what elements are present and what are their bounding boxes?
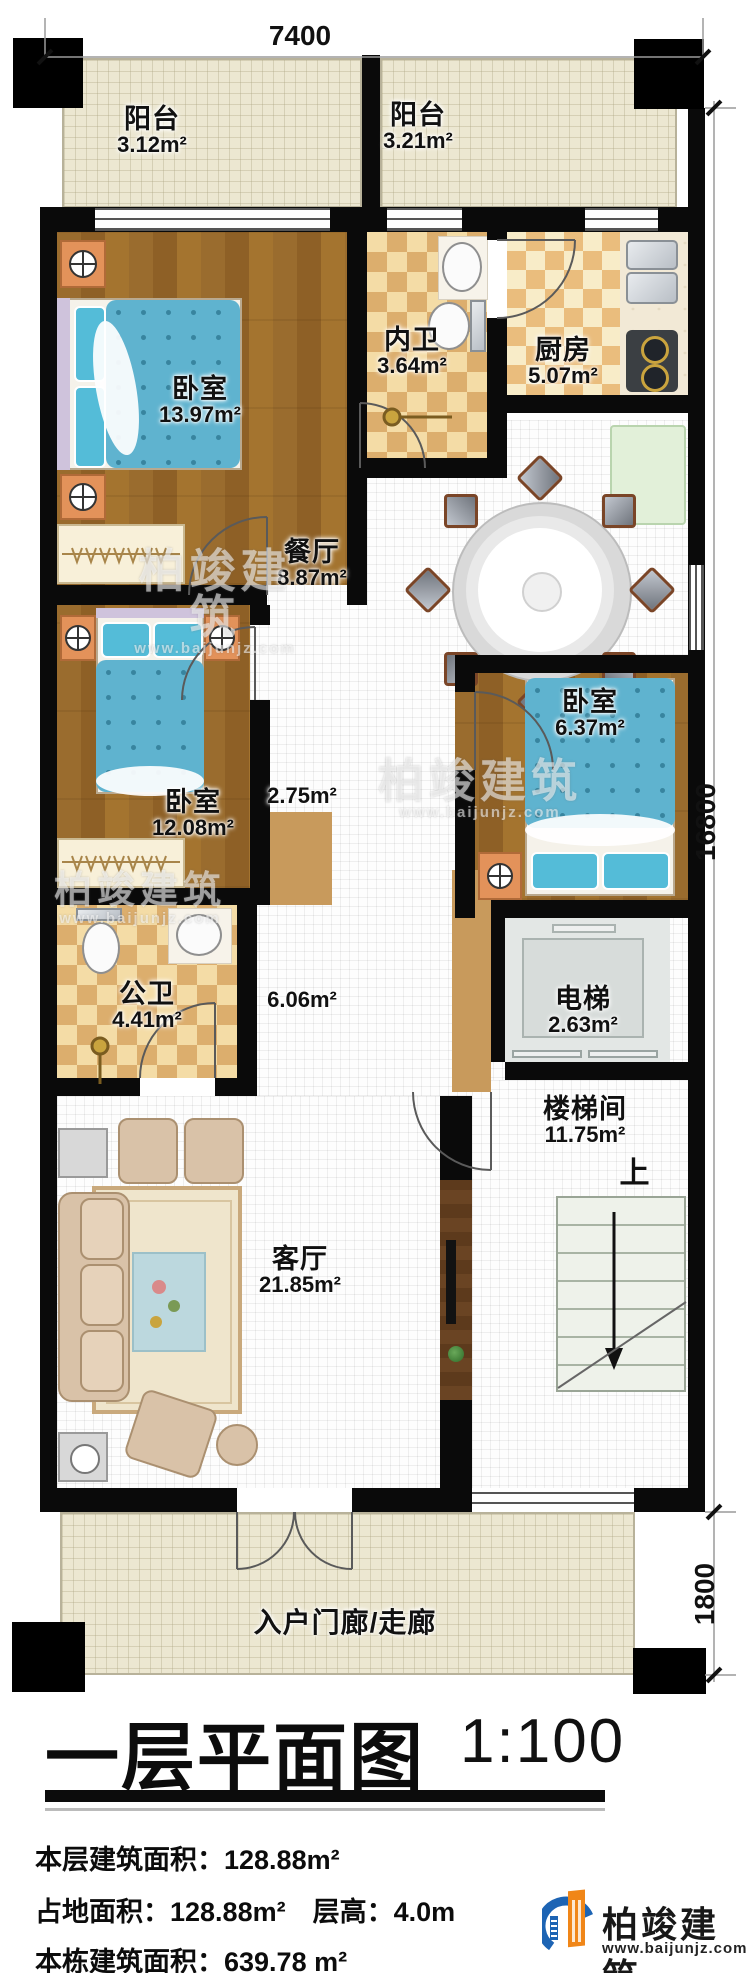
room-area: 12.08m² — [113, 816, 273, 839]
dining-table-center — [522, 572, 562, 612]
room-name: 厨房 — [483, 336, 643, 364]
room-name: 电梯 — [503, 985, 663, 1013]
room-name: 入户门廊/走廊 — [210, 1608, 480, 1637]
elevator-door — [512, 1050, 582, 1058]
stove-burner — [641, 336, 669, 364]
room-area: 6.06m² — [255, 988, 349, 1011]
entrance-floor — [60, 1512, 635, 1675]
kitchen-sink-basin — [626, 240, 678, 270]
dimension-top: 7400 — [240, 20, 360, 52]
bed-3-pillow — [531, 852, 599, 890]
room-area: 6.37m² — [510, 716, 670, 739]
wall-bottom — [352, 1488, 472, 1512]
wall — [250, 605, 270, 625]
stat-total-area: 本栋建筑面积：639.78 m² — [35, 1940, 347, 1973]
room-name: 卧室 — [120, 375, 280, 403]
room-label-stairwell: 楼梯间 11.75m² — [505, 1095, 665, 1146]
company-url: www.baijunjz.com — [602, 1940, 747, 1957]
toilet — [82, 922, 120, 974]
column — [12, 1622, 85, 1692]
stove-burner — [641, 364, 669, 392]
room-name: 卧室 — [510, 688, 670, 716]
stairs — [556, 1196, 686, 1392]
window — [387, 208, 462, 231]
bed-3-pillow — [602, 852, 670, 890]
nightstand — [60, 240, 106, 288]
dimension-right-lower: 1800 — [689, 1539, 721, 1649]
rug-flower — [152, 1280, 166, 1294]
room-label-balcony-left: 阳台 3.12m² — [72, 105, 232, 156]
room-name: 餐厅 — [232, 538, 392, 566]
room-area: 3.21m² — [338, 129, 498, 152]
tv — [446, 1240, 456, 1324]
rug-flower — [168, 1300, 180, 1312]
elevator-door — [588, 1050, 658, 1058]
wall — [487, 395, 688, 413]
room-area: 4.41m² — [67, 1008, 227, 1031]
sofa-cushion — [80, 1264, 124, 1326]
stairs-up-label: 上 — [615, 1158, 655, 1190]
column — [13, 38, 83, 108]
room-area: 8.87m² — [232, 566, 392, 589]
room-label-bedroom-2: 卧室 12.08m² — [113, 788, 273, 839]
nightstand — [60, 615, 96, 661]
room-label-elevator: 电梯 2.63m² — [503, 985, 663, 1036]
nightstand — [60, 474, 106, 520]
sofa-cushion — [80, 1198, 124, 1260]
stat-floor-area: 本层建筑面积：128.88m² — [35, 1838, 340, 1877]
wall — [491, 900, 688, 918]
room-name: 阳台 — [72, 105, 232, 133]
wall — [440, 1096, 472, 1180]
table-lamp — [70, 1444, 100, 1474]
room-name: 楼梯间 — [505, 1095, 665, 1123]
bed-2-pillow — [153, 622, 203, 658]
pouf — [216, 1424, 258, 1466]
wall — [455, 655, 688, 673]
column — [634, 39, 704, 109]
wall — [505, 1062, 688, 1080]
room-name: 客厅 — [220, 1245, 380, 1273]
room-name: 卧室 — [113, 788, 273, 816]
room-name: 公卫 — [67, 980, 227, 1008]
plant — [448, 1346, 464, 1362]
armchair — [118, 1118, 178, 1184]
end-table — [58, 1128, 108, 1178]
armchair — [184, 1118, 244, 1184]
plan-scale: 1:100 — [460, 1706, 625, 1777]
room-label-bedroom-3: 卧室 6.37m² — [510, 688, 670, 739]
bed-2-pillow — [101, 622, 151, 658]
bed-2-headboard — [96, 608, 204, 618]
window — [472, 1492, 634, 1510]
wall — [57, 1078, 140, 1096]
room-area: 5.07m² — [483, 364, 643, 387]
wall — [40, 888, 257, 905]
wall — [455, 673, 475, 692]
stat-footprint-height: 占地面积：128.88m² 层高：4.0m — [35, 1890, 455, 1929]
toilet-tank — [76, 908, 122, 921]
room-area: 2.63m² — [503, 1013, 663, 1036]
elevator-vent — [552, 924, 616, 933]
wardrobe — [57, 524, 185, 584]
room-name: 内卫 — [332, 326, 492, 354]
wardrobe — [57, 838, 185, 888]
company-name: 柏竣建筑 — [602, 1896, 750, 1973]
room-label-entrance: 入户门廊/走廊 — [210, 1608, 480, 1637]
sink — [442, 242, 482, 292]
room-area: 13.97m² — [120, 403, 280, 426]
room-label-inner-bath: 内卫 3.64m² — [332, 326, 492, 377]
wall — [215, 1078, 237, 1096]
room-area: 2.75m² — [255, 784, 349, 807]
room-label-hall: 6.06m² — [255, 988, 349, 1011]
room-area: 21.85m² — [220, 1273, 380, 1296]
wall-bottom — [57, 1488, 237, 1512]
room-label-dining: 餐厅 8.87m² — [232, 538, 392, 589]
window — [689, 565, 704, 650]
dining-chair — [444, 494, 478, 528]
wall-outer-left — [40, 207, 57, 1512]
title-rule-thin — [45, 1808, 605, 1811]
title-rule — [45, 1790, 605, 1802]
window — [585, 208, 658, 231]
window — [95, 208, 330, 231]
wall — [237, 905, 257, 1096]
bed-3-sheet-fold — [525, 814, 675, 846]
room-name: 阳台 — [338, 101, 498, 129]
wall — [455, 770, 475, 918]
room-area: 3.64m² — [332, 354, 492, 377]
rug-flower — [150, 1316, 162, 1328]
wall-bottom — [634, 1488, 705, 1512]
tv-cabinet — [440, 1180, 472, 1400]
room-label-corridor: 2.75m² — [255, 784, 349, 807]
room-label-balcony-right: 阳台 3.21m² — [338, 101, 498, 152]
column — [633, 1648, 706, 1694]
sink — [176, 914, 222, 956]
nightstand — [204, 615, 240, 661]
bed-1-headboard — [57, 298, 70, 470]
nightstand — [478, 852, 522, 900]
kitchen-sink-basin — [626, 272, 678, 304]
plan-title: 一层平面图 — [45, 1698, 425, 1805]
room-label-public-bath: 公卫 4.41m² — [67, 980, 227, 1031]
room-area: 11.75m² — [505, 1123, 665, 1146]
dining-chair — [602, 494, 636, 528]
room-label-kitchen: 厨房 5.07m² — [483, 336, 643, 387]
sofa-cushion — [80, 1330, 124, 1392]
room-area: 3.12m² — [72, 133, 232, 156]
dimension-right-main: 16800 — [690, 762, 722, 882]
wall — [440, 1400, 472, 1488]
wall — [347, 458, 507, 478]
floor-plan-canvas: 阳台 3.12m² 阳台 3.21m² 卧室 13.97m² 内卫 3.64m²… — [0, 0, 750, 1973]
room-label-bedroom-1: 卧室 13.97m² — [120, 375, 280, 426]
room-label-living: 客厅 21.85m² — [220, 1245, 380, 1296]
company-logo-icon — [542, 1886, 596, 1964]
wall — [487, 232, 507, 240]
